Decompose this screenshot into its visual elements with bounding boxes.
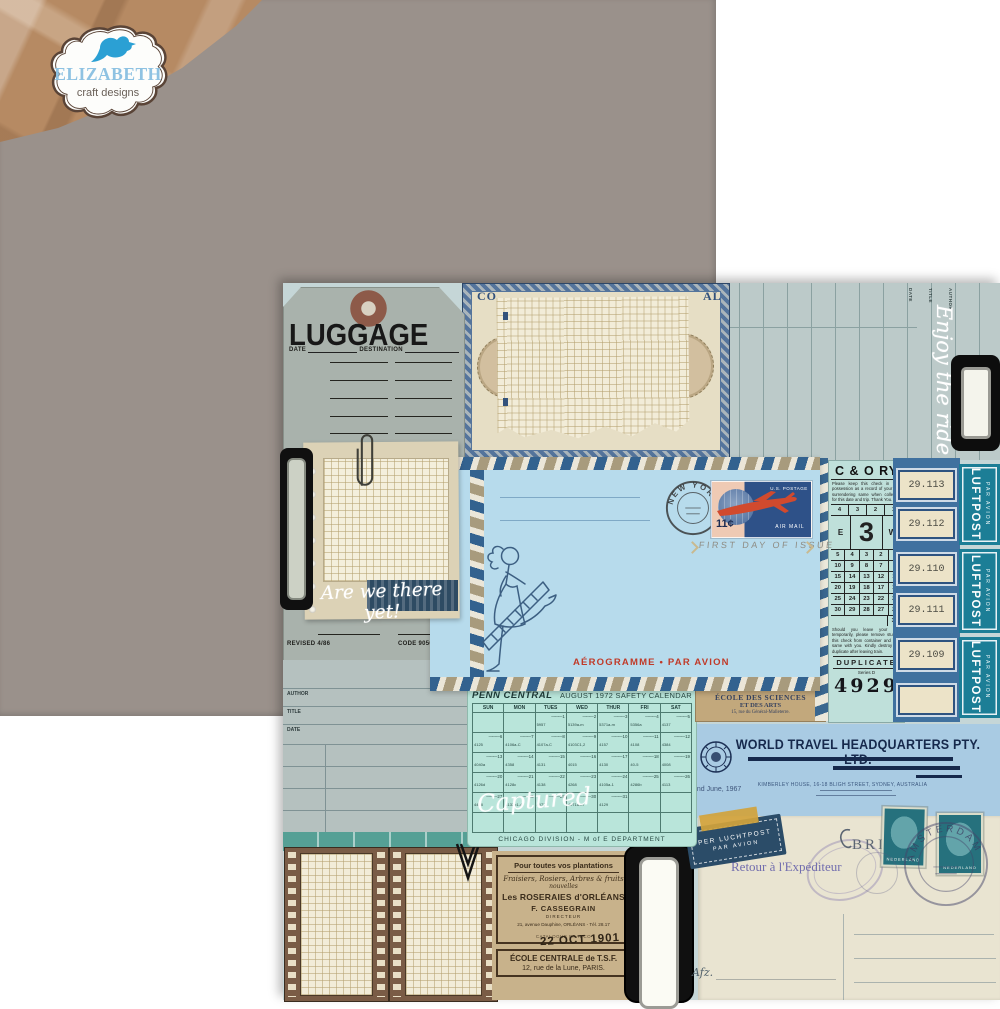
tag-blank-line [330, 416, 388, 417]
ticket-row: 2019181716 [831, 582, 902, 593]
library-card-label: AUTHOR [287, 691, 308, 697]
certificate-letters-right: AL [703, 289, 722, 304]
certificate-mark [503, 312, 508, 320]
calendar-brand: PENN CENTRAL [472, 690, 552, 701]
calendar-cell: 174130 [598, 753, 629, 773]
tag-blank-line [395, 433, 452, 434]
calendar-cell: 74106a-C [504, 733, 535, 753]
tab-label [961, 367, 991, 439]
ticket-row: 3029282726 [831, 604, 902, 615]
ticket-notice-bottom: Should you leave your seat temporarily, … [832, 627, 901, 654]
ad-products: Fraisiers, Rosiers, Arbres & fruits [500, 875, 627, 883]
luftpost-subtitle: PAR AVION [984, 482, 990, 526]
stamp-value: 11¢ [716, 518, 734, 530]
ad-school-address: 12, rue de la Lune, PARIS. [500, 965, 627, 972]
ad-box: Pour toutes vos plantations Fraisiers, R… [496, 855, 631, 944]
ad-role: DIRECTEUR [500, 914, 627, 919]
first-day-text: FIRST DAY OF ISSUE [698, 540, 835, 550]
ecole-line2: ET DES ARTS [696, 702, 825, 709]
calendar-cell: 154131 [536, 753, 567, 773]
ticket-east: E [831, 528, 850, 537]
letterhead-subline [816, 795, 896, 796]
ticket-duplicate: DUPLICATE [833, 656, 900, 669]
calendar-cell [598, 813, 629, 833]
calendar-day-header: SAT [661, 704, 692, 713]
ticket-car-row: E 3 W [831, 515, 902, 549]
ad-products-2: nouvelles [500, 883, 627, 890]
letterhead-subline [820, 790, 892, 791]
baggage-label: 29.113 [898, 470, 955, 500]
calendar-cell [504, 813, 535, 833]
brand-name: ELIZABETH [54, 64, 162, 84]
calendar-card: PENN CENTRAL AUGUST 1972 SAFETY CALENDAR… [467, 684, 697, 847]
ecole-line3: 15, rue du Général-Malleterre. [696, 710, 825, 715]
tag-blank-line [395, 380, 452, 381]
letterhead-date: 2nd June, 1967 [693, 786, 741, 793]
calendar-cell: 314129 [598, 793, 629, 813]
ledger-rule [716, 327, 917, 328]
tag-destination-label: DESTINATION [359, 347, 403, 353]
tag-blank-line [395, 416, 452, 417]
calendar-cell: 264113 [661, 773, 692, 793]
certificate-mark [503, 398, 508, 406]
library-card-line [283, 788, 472, 789]
calendar-cell: 94103C1,2 [567, 733, 598, 753]
baggage-label: 29.111 [898, 595, 955, 625]
calendar-cell: 194008 [661, 753, 692, 773]
calendar-cell [661, 793, 692, 813]
calendar-cell: 254286b [629, 773, 660, 793]
binder-clip-icon [452, 842, 484, 882]
luftpost-subtitle: PAR AVION [984, 569, 990, 613]
library-card-label: TITLE [287, 709, 301, 715]
luftpost-label: LUFTPOST PAR AVION [959, 464, 1000, 545]
note-grid-paper [323, 458, 449, 582]
calendar-cell: 25139a-m [567, 713, 598, 733]
certificate-grid-paper [496, 296, 689, 442]
calendar-cell: 54137 [661, 713, 692, 733]
calendar-cell: 114108 [629, 733, 660, 753]
address-line [854, 958, 996, 959]
library-card-label: DATE [287, 727, 300, 733]
certificate-letters-left: CO [477, 289, 497, 304]
baggage-label-panel: 29.113 29.112 29.110 29.111 29.109 [893, 458, 960, 722]
baggage-label: 29.109 [898, 640, 955, 670]
calendar-day-header: THUR [598, 704, 629, 713]
calendar-day-header: MON [504, 704, 535, 713]
calendar-footer: CHICAGO DIVISION - M of E DEPARTMENT [472, 836, 692, 843]
library-card-line [283, 724, 472, 725]
film-sprockets [377, 852, 385, 997]
tag-blank-line [330, 398, 388, 399]
girl-sketch [473, 540, 568, 690]
film-strip [284, 847, 389, 1002]
afz-text: Afz. [692, 966, 713, 979]
aerogramme-text: AÉROGRAMME • PAR AVION [573, 657, 730, 668]
ticket-row: 54321 [831, 549, 902, 560]
tag-line [308, 346, 357, 353]
film-frame-paper [300, 853, 373, 996]
ticket-car-number: 3 [850, 516, 883, 549]
airmail-border-top [430, 457, 820, 470]
calendar-cell [629, 813, 660, 833]
ad-owner: F. CASSEGRAIN [500, 904, 627, 913]
brand-subtitle: craft designs [77, 87, 140, 99]
baggage-label: 29.110 [898, 554, 955, 584]
tag-blank-line [330, 362, 388, 363]
tag-revised: REVISED 4/86 [287, 641, 330, 647]
envelope-address-line [500, 497, 640, 498]
calendar-title: AUGUST 1972 SAFETY CALENDAR [560, 691, 692, 700]
paperclip-icon [352, 430, 382, 492]
calendar-cell: 64125 [473, 733, 504, 753]
film-sprockets [288, 852, 296, 997]
french-ad: Pour toutes vos plantations Fraisiers, R… [492, 851, 635, 1000]
ecole-label: ÉCOLE DES SCIENCES ET DES ARTS 15, rue d… [695, 690, 826, 722]
calendar-day-header: TUES [536, 704, 567, 713]
calendar-cell: 244105a-1 [598, 773, 629, 793]
brief-flourish-icon [838, 826, 852, 854]
ledger-label: DATE [908, 288, 913, 310]
calendar-cell: 164015 [567, 753, 598, 773]
faint-ring-postmark [856, 852, 898, 894]
calendar-cell [629, 793, 660, 813]
amsterdam-postmark: AMSTERDAM [902, 820, 990, 908]
ticket-row: 4321 [831, 504, 902, 515]
calendar-cell: 124384 [661, 733, 692, 753]
calendar-cell [661, 813, 692, 833]
calendar-cell: 84107a-C [536, 733, 567, 753]
address-line [854, 982, 996, 983]
letterhead-address: KIMBERLEY HOUSE, 16-18 BLIGH STREET, SYD… [745, 782, 940, 788]
calendar-cell: 1840-5 [629, 753, 660, 773]
ecole-line1: ÉCOLE DES SCIENCES [696, 693, 825, 702]
calendar-cell: 144358 [504, 753, 535, 773]
calendar-cell: 35371a-m [598, 713, 629, 733]
ad-address: 21, avenue Dauphine, ORLÉANS - Tél. 28.1… [500, 922, 627, 927]
tag-blank-line [318, 634, 380, 635]
library-card-line [283, 766, 472, 767]
baggage-label [898, 685, 955, 715]
calendar-day-header: FRI [629, 704, 660, 713]
calendar-cell [567, 813, 598, 833]
company-name: WORLD TRAVEL HEADQUARTERS PTY. LTD. [722, 737, 994, 767]
postcard-divider [843, 914, 844, 1000]
ad-school-box: ÉCOLE CENTRALE de T.S.F. 12, rue de la L… [496, 949, 631, 977]
ticket-row: 109876 [831, 560, 902, 571]
tag-line [405, 346, 459, 353]
calendar-cell: 15957 [536, 713, 567, 733]
calendar-day-header: WED [567, 704, 598, 713]
address-line [854, 934, 994, 935]
ticket-title: C & O RY [831, 464, 902, 480]
big-label [639, 857, 679, 1009]
calendar-cell [473, 713, 504, 733]
library-card-line [283, 744, 472, 745]
calendar-cell: 134040a [473, 753, 504, 773]
ad-rule [508, 872, 619, 873]
luftpost-subtitle: PAR AVION [984, 655, 990, 699]
calendar-cell: 104157 [598, 733, 629, 753]
library-card-line [283, 706, 472, 707]
stamp-postage-text: U.S. POSTAGE [770, 486, 808, 491]
baggage-label: 29.112 [898, 509, 955, 539]
afz-line [716, 979, 836, 980]
film-sprockets [393, 852, 401, 997]
calendar-day-header: SUN [473, 704, 504, 713]
ticket-notice-top: Please keep this check in your possessio… [832, 481, 901, 503]
ticket-row: 2524232221 [831, 593, 902, 604]
calendar-cell [536, 813, 567, 833]
tag-blank-line [395, 362, 452, 363]
tag-field-row: DATE DESTINATION [289, 346, 459, 353]
ticket-row: 31 [831, 615, 902, 626]
tag-blank-line [395, 398, 452, 399]
ad-name: Les ROSERAIES d'ORLÉANS [500, 892, 627, 902]
envelope-address-line [500, 520, 650, 521]
luftpost-title: LUFTPOST [969, 555, 981, 628]
tag-date-label: DATE [289, 347, 306, 353]
letterhead-rule [748, 757, 953, 761]
luftpost-label: LUFTPOST PAR AVION [959, 549, 1000, 633]
left-label [287, 458, 306, 600]
stamp-airmail-text: AIR MAIL [772, 524, 808, 530]
luftpost-title: LUFTPOST [969, 641, 981, 714]
letterhead-rule [833, 766, 960, 770]
brand-badge: ELIZABETH craft designs [44, 24, 172, 122]
calendar-cell: 45356a [629, 713, 660, 733]
tag-blank-line [330, 380, 388, 381]
ticket-row: 1514131211 [831, 571, 902, 582]
ad-header: Pour toutes vos plantations [500, 861, 627, 870]
are-we-there-yet-script: Are we there yet! [305, 578, 458, 625]
library-card-line [283, 810, 472, 811]
ad-school-name: ÉCOLE CENTRALE de T.S.F. [500, 954, 627, 963]
calendar-cell [504, 713, 535, 733]
luftpost-title: LUFTPOST [969, 468, 981, 541]
letterhead-rule [916, 775, 962, 778]
luftpost-label: LUFTPOST PAR AVION [959, 637, 1000, 718]
